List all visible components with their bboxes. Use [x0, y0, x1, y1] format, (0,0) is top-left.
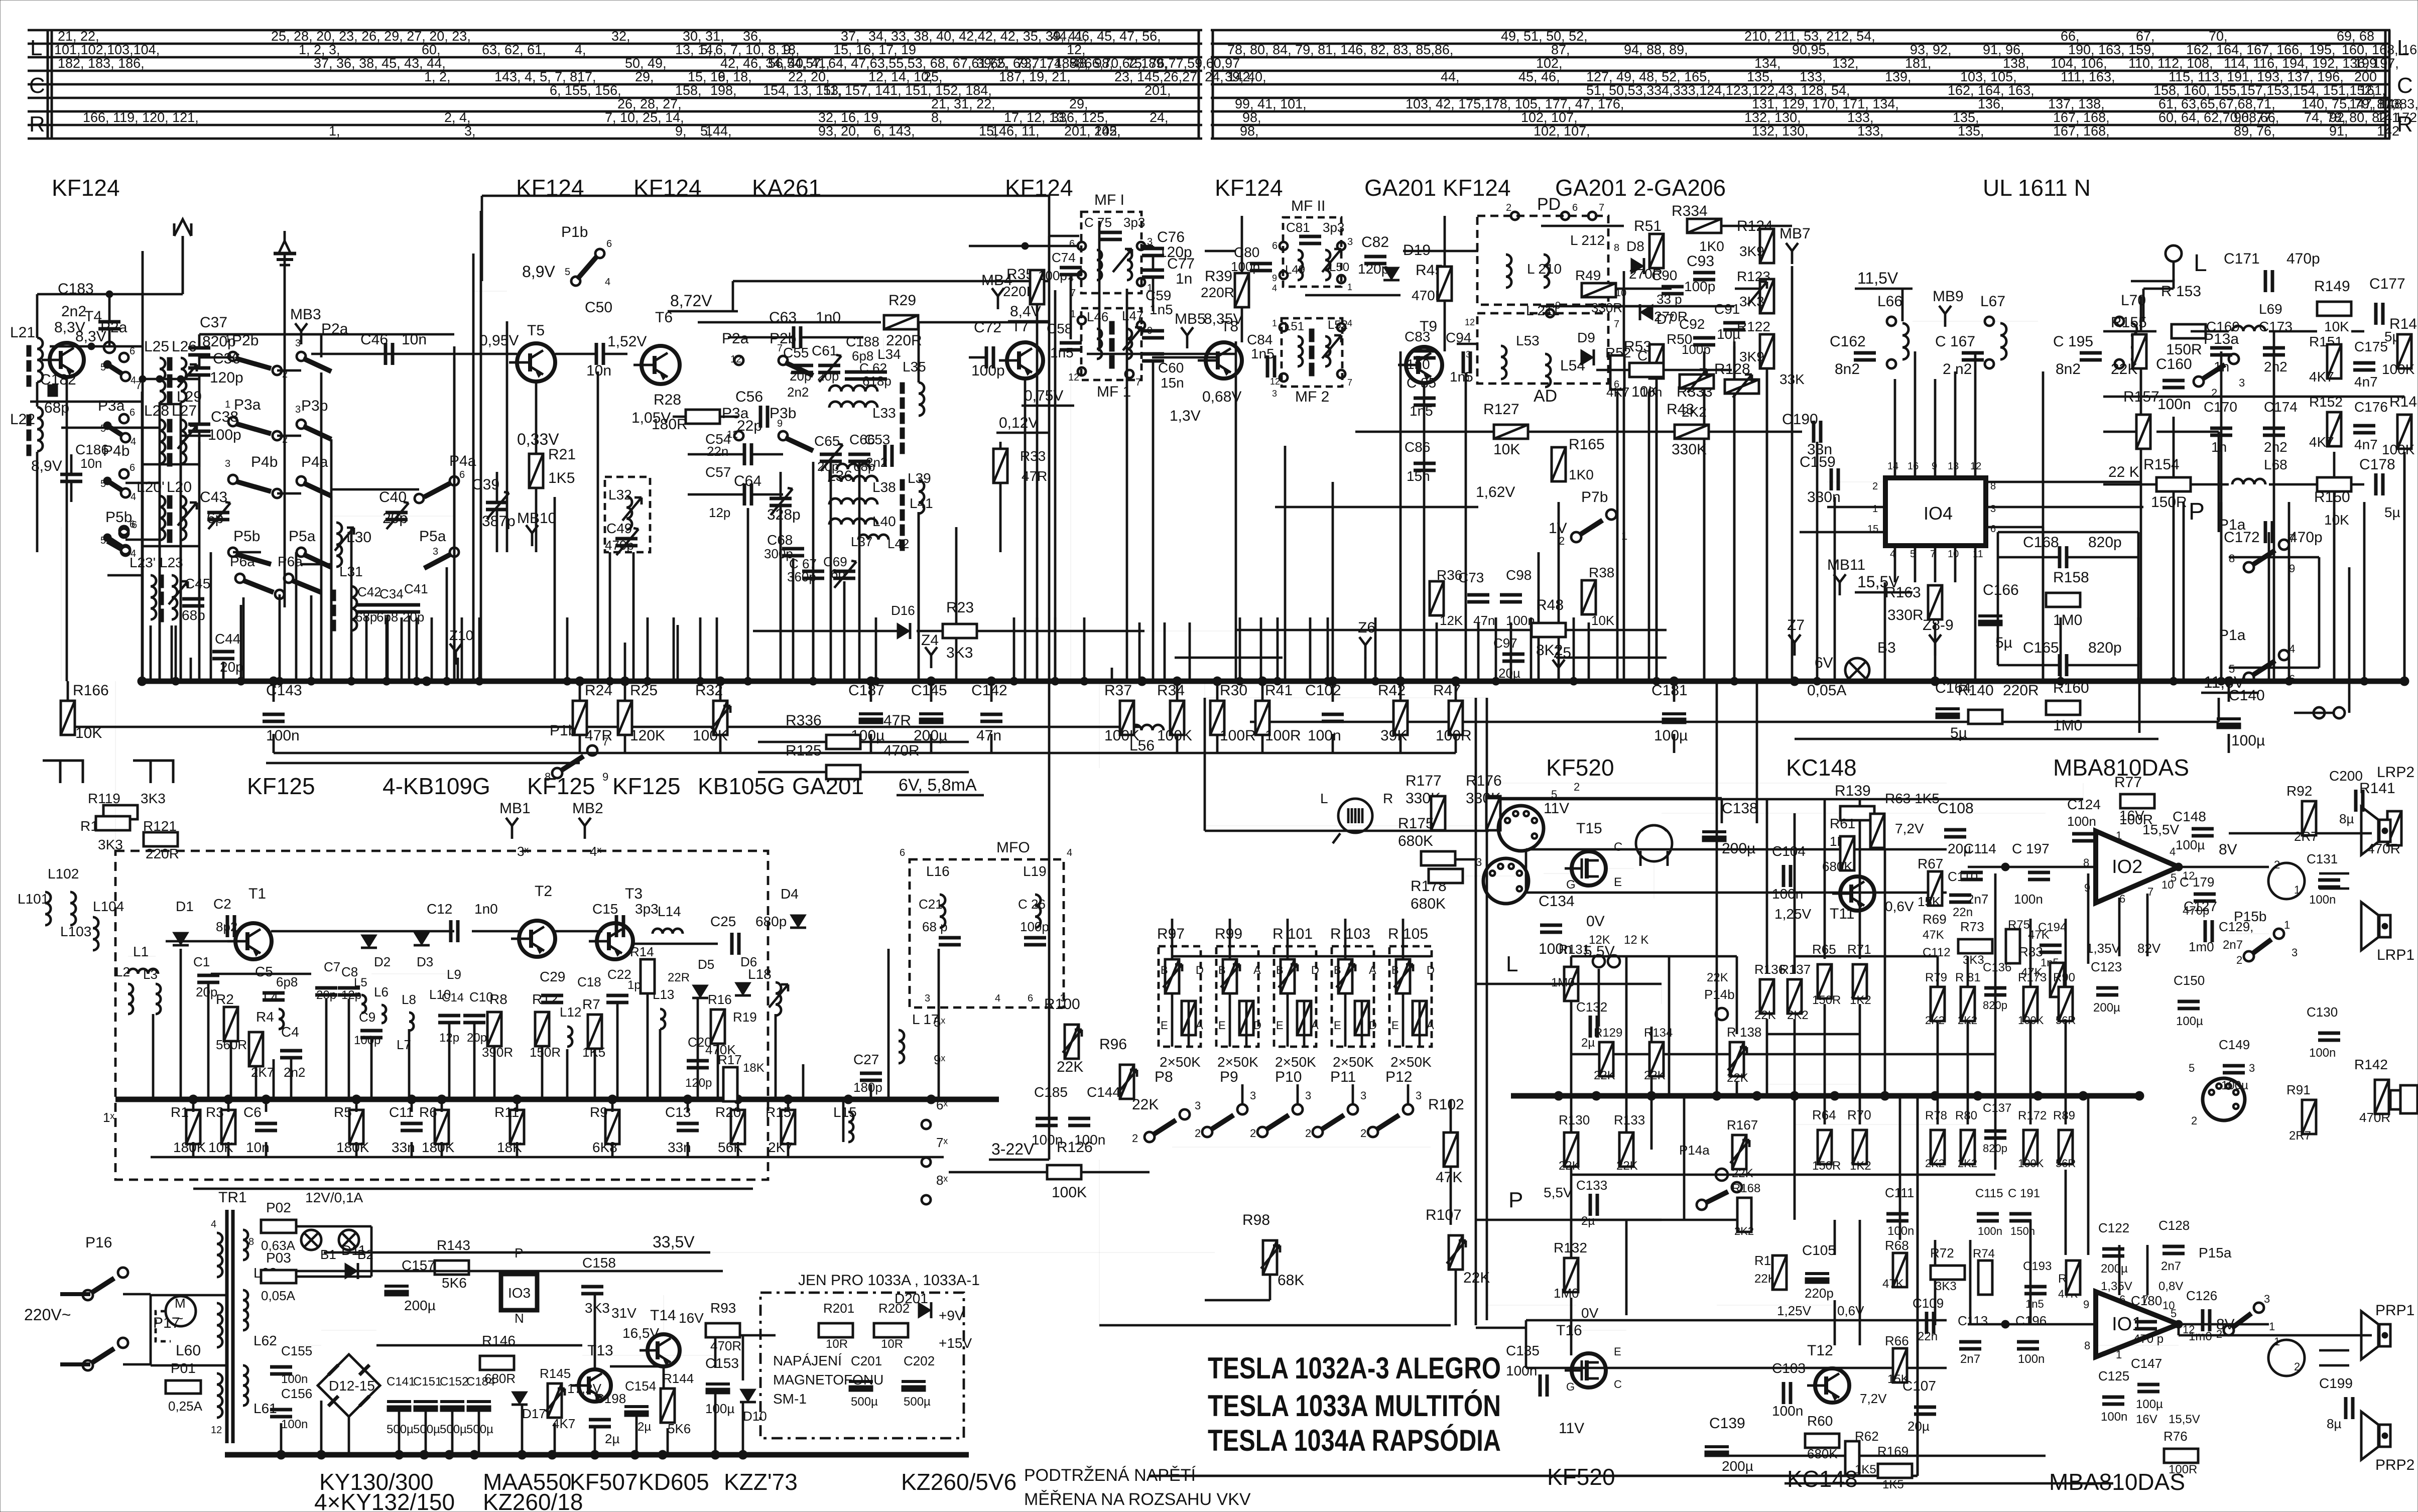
svg-text:22K: 22K — [1754, 1009, 1776, 1022]
svg-text:L9: L9 — [447, 967, 461, 982]
svg-text:100n: 100n — [1032, 1132, 1063, 1148]
svg-text:9: 9 — [2083, 1298, 2089, 1311]
svg-text:470R: 470R — [2367, 841, 2400, 856]
svg-text:22 K: 22 K — [2108, 464, 2139, 480]
svg-text:L35: L35 — [903, 359, 926, 374]
svg-text:C42: C42 — [357, 584, 381, 599]
svg-text:P6a: P6a — [230, 554, 255, 569]
svg-text:R133: R133 — [1614, 1112, 1645, 1127]
svg-text:3K3: 3K3 — [141, 791, 166, 806]
svg-text:201,: 201, — [1144, 83, 1171, 98]
svg-text:E: E — [1334, 1019, 1341, 1032]
svg-text:5ˣ: 5ˣ — [934, 1015, 945, 1030]
svg-text:R60: R60 — [1807, 1413, 1833, 1429]
svg-text:R17: R17 — [718, 1052, 742, 1067]
svg-text:C20: C20 — [688, 1035, 712, 1050]
svg-text:B: B — [1218, 964, 1226, 976]
svg-text:5: 5 — [2189, 1062, 2195, 1074]
svg-text:22, 20,: 22, 20, — [788, 69, 830, 84]
svg-text:KD605: KD605 — [639, 1469, 709, 1495]
svg-text:12K: 12K — [1589, 933, 1610, 947]
svg-text:2: 2 — [1132, 1132, 1138, 1145]
svg-text:2: 2 — [282, 369, 288, 380]
svg-text:5,5V: 5,5V — [1544, 1185, 1573, 1200]
svg-text:29,: 29, — [635, 69, 654, 84]
svg-text:115, 113, 191, 193, 137, 196,: 115, 113, 191, 193, 137, 196, — [2169, 69, 2344, 84]
svg-text:3: 3 — [295, 338, 301, 349]
svg-text:KZ260/5V6: KZ260/5V6 — [901, 1469, 1016, 1495]
svg-text:3ˣ: 3ˣ — [517, 844, 529, 859]
svg-text:270R: 270R — [1629, 266, 1663, 282]
svg-text:R160: R160 — [2053, 680, 2089, 696]
svg-text:3-22V: 3-22V — [991, 1140, 1035, 1158]
svg-text:C41: C41 — [404, 581, 428, 596]
svg-text:500µ: 500µ — [851, 1395, 878, 1409]
svg-text:500µ: 500µ — [466, 1423, 493, 1436]
svg-text:0,12V: 0,12V — [999, 415, 1038, 431]
svg-text:R6: R6 — [419, 1104, 437, 1120]
svg-text:MB3: MB3 — [290, 306, 321, 323]
svg-text:70,: 70, — [2209, 29, 2228, 44]
svg-text:2K2: 2K2 — [1925, 1157, 1945, 1170]
svg-text:C165: C165 — [2023, 640, 2059, 656]
svg-text:L62: L62 — [253, 1333, 277, 1348]
svg-text:P11: P11 — [1330, 1069, 1356, 1085]
svg-text:500µ: 500µ — [440, 1423, 467, 1436]
svg-text:Z4: Z4 — [921, 632, 939, 649]
svg-text:T13: T13 — [587, 1342, 613, 1359]
svg-text:20p: 20p — [196, 984, 217, 999]
svg-text:10K: 10K — [1493, 441, 1520, 458]
svg-text:16V: 16V — [679, 1310, 704, 1326]
svg-text:C124: C124 — [2067, 797, 2101, 812]
svg-text:6: 6 — [459, 469, 465, 480]
svg-text:R32: R32 — [695, 682, 723, 699]
svg-text:13: 13 — [1948, 461, 1959, 472]
svg-text:201, 202,: 201, 202, — [1064, 123, 1121, 139]
svg-text:R176: R176 — [1466, 773, 1502, 789]
svg-text:E: E — [1218, 1019, 1226, 1032]
svg-text:R175: R175 — [1398, 815, 1434, 832]
svg-text:R24: R24 — [585, 682, 612, 699]
svg-text:3: 3 — [1305, 1089, 1311, 1102]
svg-text:C81: C81 — [1286, 220, 1310, 235]
svg-text:R166: R166 — [73, 682, 109, 699]
svg-text:C94: C94 — [1446, 330, 1471, 345]
svg-text:~: ~ — [176, 1311, 183, 1326]
svg-text:12: 12 — [1465, 317, 1475, 327]
svg-text:7,2V: 7,2V — [1860, 1391, 1887, 1406]
svg-text:131, 129, 170, 171, 134,: 131, 129, 170, 171, 134, — [1752, 96, 1899, 111]
svg-text:MF I: MF I — [1094, 192, 1124, 208]
svg-text:Z10: Z10 — [449, 627, 473, 643]
svg-text:37,: 37, — [841, 29, 860, 44]
svg-text:26, 28, 27,: 26, 28, 27, — [617, 96, 682, 111]
svg-text:C5: C5 — [255, 964, 273, 979]
svg-text:C122: C122 — [2098, 1220, 2129, 1235]
svg-text:2: 2 — [1195, 1127, 1201, 1140]
svg-text:B3: B3 — [1877, 640, 1896, 656]
svg-text:100n: 100n — [2157, 396, 2191, 413]
svg-text:R8: R8 — [489, 991, 507, 1007]
svg-text:6: 6 — [1572, 202, 1578, 213]
svg-text:470R: 470R — [2359, 1110, 2390, 1125]
svg-text:158,: 158, — [675, 83, 702, 98]
svg-text:3: 3 — [1347, 236, 1353, 247]
svg-text:C45: C45 — [185, 576, 210, 591]
svg-text:MF 2: MF 2 — [1295, 389, 1329, 405]
svg-text:R173: R173 — [2018, 971, 2047, 984]
svg-text:R122: R122 — [1737, 319, 1770, 334]
svg-text:D6: D6 — [740, 954, 757, 969]
svg-text:C21: C21 — [919, 897, 943, 912]
svg-text:158, 160, 155,157,153,154, 1: 158, 160, 155,157,153,154, 151,152, — [2153, 83, 2376, 98]
svg-text:IO4: IO4 — [1924, 503, 1953, 524]
svg-text:KF520: KF520 — [1547, 1464, 1615, 1490]
svg-text:2n7: 2n7 — [1967, 892, 1988, 907]
svg-text:8K2: 8K2 — [1536, 642, 1563, 659]
svg-text:R38: R38 — [1589, 565, 1614, 580]
svg-text:MBA810DAS: MBA810DAS — [2049, 1469, 2185, 1495]
svg-text:R92: R92 — [2286, 783, 2312, 799]
svg-text:L20': L20' — [137, 479, 165, 495]
svg-text:C187: C187 — [848, 682, 884, 699]
svg-text:142: 142 — [2377, 123, 2399, 139]
svg-text:L2: L2 — [115, 964, 130, 979]
svg-text:MB2: MB2 — [572, 800, 603, 817]
svg-text:1K2: 1K2 — [1850, 1159, 1871, 1173]
svg-text:1n5: 1n5 — [1050, 345, 1074, 360]
svg-text:MF II: MF II — [1291, 198, 1325, 214]
svg-text:C56: C56 — [735, 389, 763, 405]
svg-text:6, 155, 156,: 6, 155, 156, — [550, 83, 621, 98]
svg-text:10K: 10K — [208, 1140, 233, 1155]
svg-text:100µ: 100µ — [2231, 732, 2265, 749]
svg-text:C9: C9 — [359, 1010, 375, 1025]
svg-text:L6: L6 — [374, 984, 389, 999]
svg-text:2n7: 2n7 — [2161, 1259, 2181, 1273]
svg-text:4: 4 — [1890, 549, 1895, 560]
svg-text:15n: 15n — [1161, 375, 1184, 391]
svg-text:102,: 102, — [1536, 56, 1563, 71]
svg-text:10K: 10K — [75, 725, 102, 741]
svg-text:TESLA 1032A-3 ALEGRO: TESLA 1032A-3 ALEGRO — [1208, 1351, 1501, 1385]
svg-text:150R: 150R — [1812, 993, 1841, 1007]
svg-text:5: 5 — [1910, 549, 1916, 560]
svg-text:44, 46, 45, 47, 56,: 44, 46, 45, 47, 56, — [1052, 29, 1161, 44]
svg-text:87,: 87, — [1551, 42, 1570, 57]
svg-text:L8: L8 — [402, 992, 416, 1007]
svg-text:MB9: MB9 — [1933, 288, 1964, 305]
svg-text:6: 6 — [2289, 673, 2295, 685]
svg-text:150R: 150R — [530, 1045, 561, 1060]
svg-text:C188: C188 — [846, 334, 879, 349]
svg-text:2×50K: 2×50K — [1390, 1054, 1432, 1070]
svg-text:91, 96,: 91, 96, — [1983, 42, 2024, 57]
svg-text:150R: 150R — [2166, 341, 2202, 358]
svg-text:2K2: 2K2 — [1734, 1225, 1754, 1237]
svg-text:1: 1 — [2269, 1320, 2275, 1333]
svg-text:6p8: 6p8 — [276, 974, 298, 989]
svg-text:C180: C180 — [2131, 1293, 2162, 1308]
svg-text:6: 6 — [132, 520, 137, 531]
svg-text:143, 4, 5, 7, 8,: 143, 4, 5, 7, 8, — [494, 69, 581, 84]
svg-text:14: 14 — [1887, 461, 1898, 472]
svg-text:R168: R168 — [1732, 1182, 1760, 1195]
svg-text:P14a: P14a — [1679, 1143, 1710, 1158]
svg-text:98,: 98, — [1094, 56, 1113, 71]
svg-text:100p: 100p — [208, 427, 241, 443]
svg-text:C112: C112 — [1923, 946, 1951, 959]
svg-text:LRP2: LRP2 — [2377, 764, 2414, 781]
svg-text:D: D — [1369, 1019, 1377, 1032]
svg-text:470 p: 470 p — [2133, 1332, 2164, 1346]
svg-text:5: 5 — [565, 267, 570, 278]
svg-text:330n: 330n — [1807, 489, 1841, 506]
svg-text:135,: 135, — [1953, 110, 1979, 125]
svg-text:R140: R140 — [1958, 682, 1994, 699]
svg-text:L4: L4 — [264, 989, 278, 1004]
svg-text:25,: 25, — [924, 69, 943, 84]
svg-text:G: G — [1566, 1380, 1575, 1393]
svg-text:L29: L29 — [177, 389, 202, 405]
svg-text:5K6: 5K6 — [668, 1421, 691, 1436]
svg-text:R34: R34 — [1157, 682, 1185, 699]
svg-text:C6: C6 — [243, 1104, 262, 1120]
svg-text:P1b: P1b — [550, 722, 576, 739]
svg-text:D16: D16 — [891, 603, 915, 618]
svg-text:R146: R146 — [482, 1333, 516, 1348]
svg-text:4: 4 — [2289, 643, 2295, 655]
svg-text:10K: 10K — [2324, 512, 2349, 528]
svg-text:0,6V: 0,6V — [1837, 1303, 1864, 1318]
svg-text:68K: 68K — [1278, 1272, 1304, 1289]
svg-text:9ˣ: 9ˣ — [934, 1052, 945, 1067]
svg-text:L22: L22 — [10, 411, 35, 428]
svg-text:A: A — [1369, 964, 1376, 976]
svg-text:C172: C172 — [2224, 529, 2260, 546]
svg-text:C 167: C 167 — [1935, 333, 1975, 350]
svg-text:104, 106,: 104, 106, — [2051, 56, 2107, 71]
svg-text:C72: C72 — [974, 319, 1001, 336]
svg-text:470R: 470R — [710, 1338, 741, 1353]
svg-text:R147: R147 — [2389, 316, 2418, 332]
svg-text:D19: D19 — [1403, 242, 1431, 259]
svg-text:0,6V: 0,6V — [1885, 899, 1914, 914]
svg-text:L5: L5 — [354, 976, 367, 989]
svg-text:4: 4 — [131, 436, 136, 447]
svg-text:L: L — [1506, 952, 1518, 976]
svg-text:22K: 22K — [1594, 1069, 1615, 1082]
svg-text:22R: 22R — [668, 971, 690, 984]
svg-text:L 210: L 210 — [1527, 261, 1562, 277]
svg-text:120p: 120p — [685, 1076, 712, 1090]
svg-text:100K: 100K — [2018, 1014, 2044, 1027]
svg-text:R91: R91 — [2286, 1082, 2311, 1097]
svg-text:P3a: P3a — [722, 405, 749, 422]
svg-text:4ˣ: 4ˣ — [590, 844, 601, 859]
svg-text:R 153: R 153 — [2161, 283, 2201, 300]
svg-text:R37: R37 — [1104, 682, 1132, 699]
svg-text:L: L — [1320, 791, 1328, 806]
svg-text:C44: C44 — [215, 631, 240, 647]
svg-text:0,95V: 0,95V — [479, 332, 519, 349]
svg-text:R130: R130 — [1559, 1112, 1590, 1127]
svg-text:R70: R70 — [1847, 1107, 1871, 1122]
svg-text:100n: 100n — [1887, 1224, 1914, 1238]
svg-text:500µ: 500µ — [904, 1395, 931, 1409]
svg-text:C155: C155 — [281, 1343, 312, 1358]
svg-text:10n: 10n — [80, 456, 102, 471]
svg-text:C102: C102 — [1305, 682, 1341, 699]
svg-text:8,9V: 8,9V — [31, 458, 62, 474]
svg-text:C25: C25 — [710, 914, 736, 929]
svg-text:25, 28, 20, 23, 26, 29, 27,: 25, 28, 20, 23, 26, 29, 27, 20, 23, — [271, 29, 471, 44]
svg-text:B: B — [1334, 964, 1341, 976]
svg-text:R5: R5 — [334, 1104, 352, 1120]
svg-text:3: 3 — [1195, 1099, 1201, 1112]
svg-text:C139: C139 — [1709, 1415, 1745, 1432]
svg-text:5K6: 5K6 — [442, 1275, 467, 1291]
svg-text:100n: 100n — [2014, 892, 2043, 907]
svg-text:12: 12 — [1068, 372, 1079, 383]
svg-text:1K5: 1K5 — [1855, 1463, 1876, 1476]
svg-text:D1: D1 — [176, 899, 194, 914]
svg-text:C142: C142 — [971, 682, 1007, 699]
svg-text:100µ: 100µ — [2136, 1398, 2163, 1411]
svg-text:3K3: 3K3 — [1963, 953, 1984, 967]
svg-text:D: D — [1427, 964, 1435, 976]
svg-text:1n: 1n — [1176, 271, 1192, 287]
svg-text:5: 5 — [100, 423, 106, 434]
svg-text:181,: 181, — [1905, 56, 1932, 71]
svg-text:C 179: C 179 — [2180, 874, 2214, 890]
svg-text:560R: 560R — [216, 1037, 247, 1052]
svg-text:R49: R49 — [1575, 268, 1601, 283]
svg-text:100n: 100n — [2067, 814, 2096, 829]
svg-text:2n2: 2n2 — [2264, 359, 2287, 374]
svg-text:N: N — [515, 1311, 524, 1326]
svg-text:32,: 32, — [611, 29, 630, 44]
svg-text:L68: L68 — [2264, 457, 2287, 472]
svg-text:C150: C150 — [2174, 973, 2205, 988]
svg-text:200µ: 200µ — [1722, 840, 1755, 857]
svg-text:47R: 47R — [1022, 468, 1047, 484]
svg-text:36,: 36, — [743, 29, 762, 44]
svg-text:200µ: 200µ — [1722, 1458, 1753, 1474]
svg-text:KZZ'73: KZZ'73 — [724, 1469, 798, 1495]
svg-text:2: 2 — [1559, 535, 1565, 547]
svg-text:3: 3 — [225, 458, 230, 469]
svg-text:KF125: KF125 — [527, 773, 595, 799]
svg-text:820p: 820p — [1983, 1142, 2007, 1155]
svg-text:15K: 15K — [1918, 894, 1941, 909]
svg-text:R139: R139 — [1835, 783, 1871, 799]
svg-text:180K: 180K — [422, 1140, 455, 1155]
svg-text:56K: 56K — [718, 1140, 743, 1155]
svg-text:150R: 150R — [2151, 494, 2187, 511]
svg-text:470p: 470p — [2286, 250, 2320, 267]
svg-text:KZ260/18: KZ260/18 — [483, 1489, 583, 1512]
svg-text:R149: R149 — [2314, 278, 2350, 295]
svg-text:2: 2 — [2191, 1114, 2197, 1127]
svg-text:56R: 56R — [2056, 1157, 2076, 1170]
svg-text:T3: T3 — [625, 886, 643, 902]
svg-text:2×50K: 2×50K — [1217, 1054, 1258, 1070]
svg-text:100n: 100n — [1978, 1225, 2002, 1237]
svg-text:3: 3 — [433, 546, 438, 557]
svg-text:2R7: 2R7 — [2289, 1129, 2311, 1143]
svg-text:R131: R131 — [1559, 942, 1590, 957]
svg-text:100R: 100R — [1220, 727, 1256, 744]
svg-text:12: 12 — [1970, 461, 1981, 472]
svg-text:1,25V: 1,25V — [1774, 906, 1811, 922]
svg-text:22K: 22K — [1732, 1167, 1753, 1180]
svg-text:69, 68: 69, 68 — [2337, 29, 2374, 44]
svg-text:C168: C168 — [2023, 534, 2059, 551]
svg-text:78, 80, 84, 79, 81, 146, 82,: 78, 80, 84, 79, 81, 146, 82, 83, 85,86, — [1227, 42, 1453, 57]
svg-text:22n: 22n — [707, 444, 728, 459]
svg-text:C61: C61 — [812, 343, 837, 358]
svg-text:6: 6 — [1990, 524, 1996, 535]
svg-text:E: E — [1161, 1019, 1168, 1032]
svg-text:E: E — [1614, 875, 1622, 889]
svg-text:820p: 820p — [2088, 534, 2122, 551]
svg-text:100R: 100R — [1265, 727, 1301, 744]
svg-text:3p3: 3p3 — [635, 901, 659, 917]
svg-text:R29: R29 — [888, 292, 916, 309]
svg-text:C 195: C 195 — [2053, 333, 2093, 350]
svg-text:A: A — [1427, 1019, 1434, 1032]
svg-text:R25: R25 — [630, 682, 658, 699]
svg-text:470R: 470R — [883, 742, 920, 759]
svg-text:1: 1 — [2116, 1348, 2122, 1361]
svg-text:7: 7 — [777, 343, 783, 354]
svg-text:R143: R143 — [437, 1237, 470, 1253]
svg-text:R9: R9 — [590, 1104, 608, 1120]
svg-text:C66: C66 — [849, 432, 875, 447]
svg-text:15,: 15, — [979, 123, 998, 139]
svg-text:17,: 17, — [577, 69, 596, 84]
svg-text:C185: C185 — [1034, 1084, 1068, 1100]
svg-text:15,5V: 15,5V — [1857, 573, 1899, 591]
svg-text:R64: R64 — [1812, 1107, 1836, 1122]
svg-text:B: B — [1161, 964, 1168, 976]
svg-text:C34: C34 — [379, 586, 404, 601]
svg-text:R7: R7 — [582, 996, 600, 1012]
svg-text:C91: C91 — [1714, 301, 1740, 317]
svg-text:C133: C133 — [1576, 1178, 1607, 1193]
svg-text:2µ: 2µ — [1581, 1036, 1595, 1050]
svg-text:C60: C60 — [1158, 360, 1184, 375]
svg-text:IO3: IO3 — [508, 1285, 531, 1301]
svg-text:P8: P8 — [1155, 1069, 1173, 1085]
svg-text:R19: R19 — [733, 1010, 757, 1025]
svg-text:R71: R71 — [1847, 942, 1871, 957]
svg-text:8: 8 — [248, 1236, 254, 1247]
svg-text:139,: 139, — [1885, 69, 1912, 84]
svg-text:PRP2: PRP2 — [2375, 1457, 2414, 1473]
svg-text:15,5V: 15,5V — [2142, 822, 2179, 837]
svg-text:22K: 22K — [1463, 1270, 1490, 1286]
svg-text:D12-15: D12-15 — [329, 1378, 375, 1394]
svg-text:1n5: 1n5 — [1150, 302, 1173, 317]
svg-text:R158: R158 — [2053, 569, 2089, 586]
svg-text:T2: T2 — [535, 883, 552, 900]
svg-text:120K: 120K — [630, 727, 665, 744]
svg-text:A: A — [1196, 1019, 1203, 1032]
svg-text:B: B — [1276, 964, 1284, 976]
